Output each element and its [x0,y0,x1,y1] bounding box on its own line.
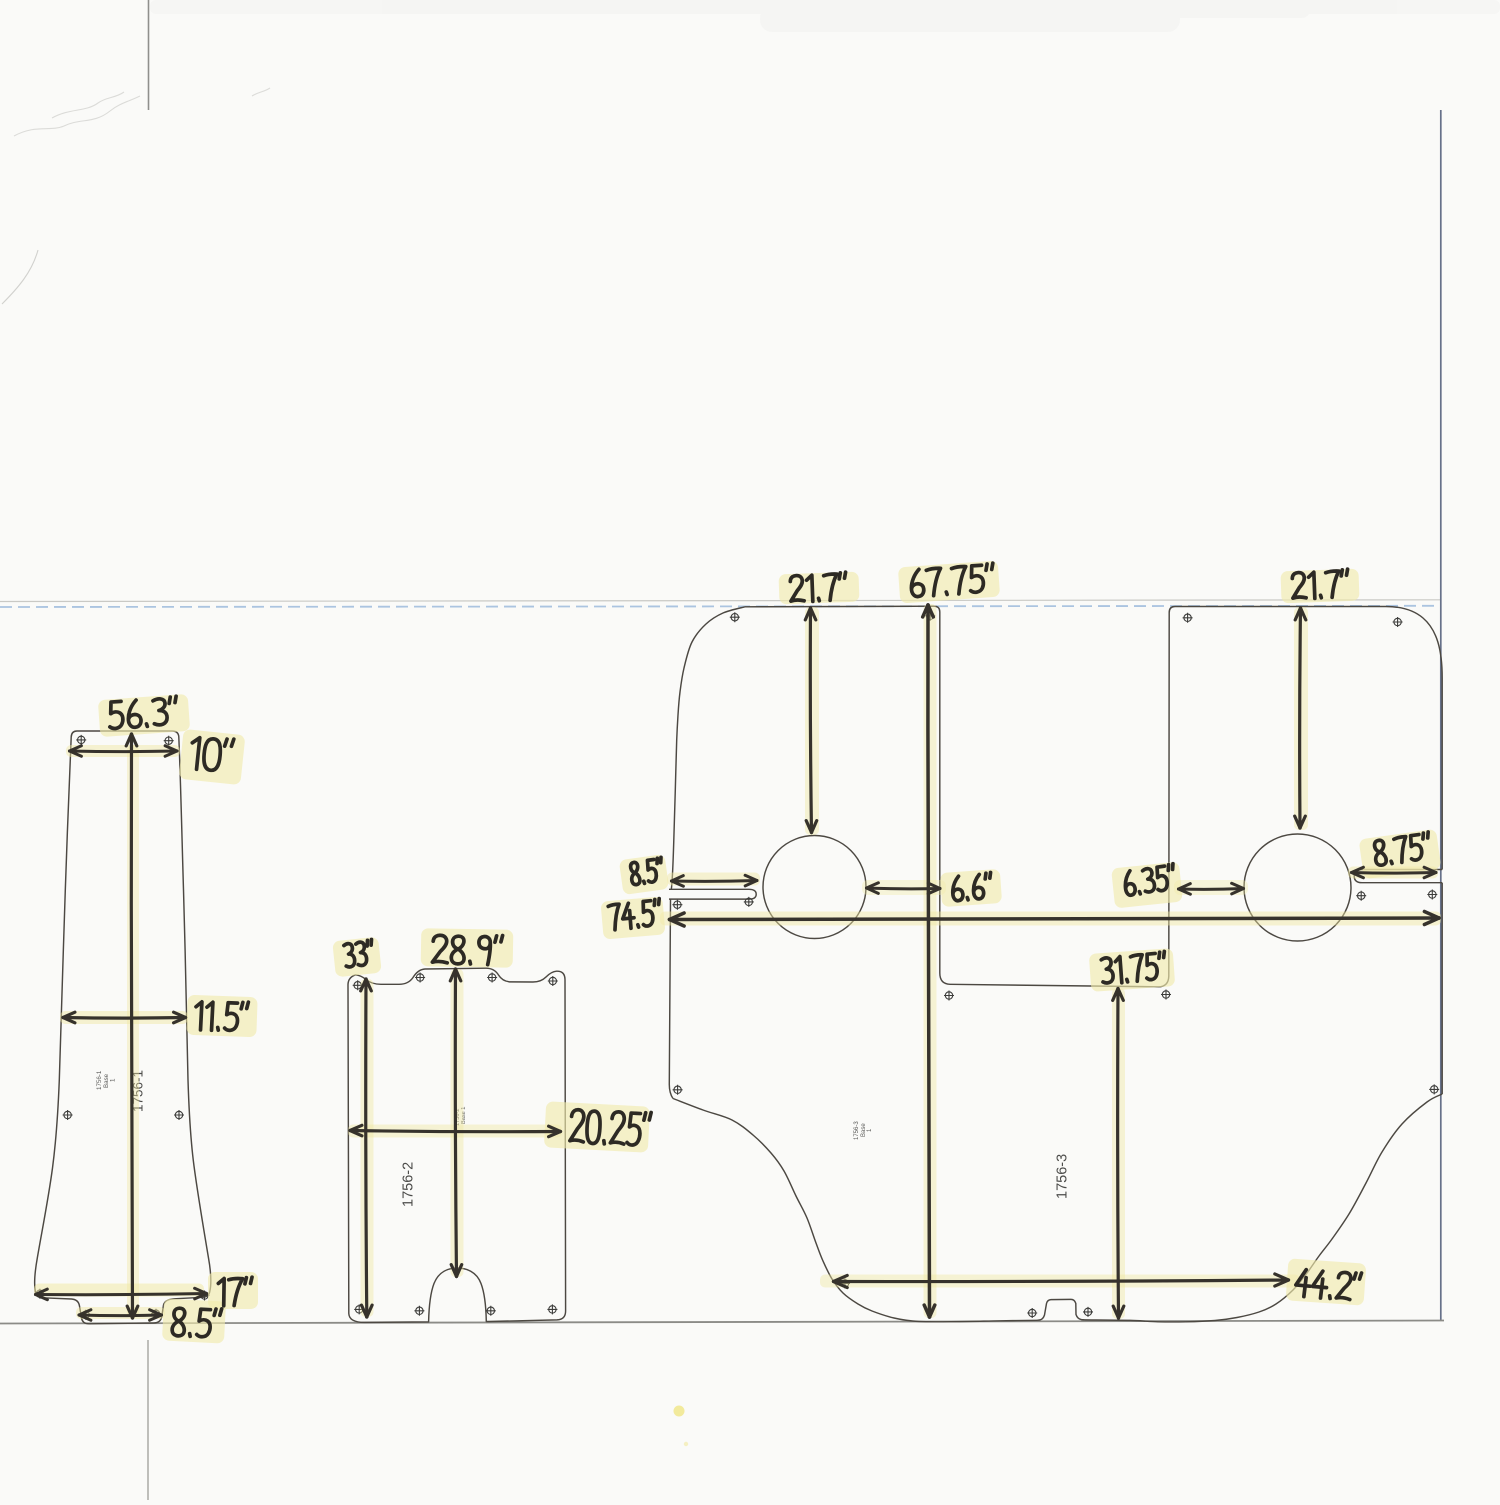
svg-text:1: 1 [110,1078,117,1082]
svg-text:1756-3: 1756-3 [1055,1154,1071,1199]
svg-text:1756-2: 1756-2 [401,1162,417,1207]
svg-text:1756-1: 1756-1 [96,1070,103,1090]
svg-text:1756-3: 1756-3 [854,1121,860,1140]
